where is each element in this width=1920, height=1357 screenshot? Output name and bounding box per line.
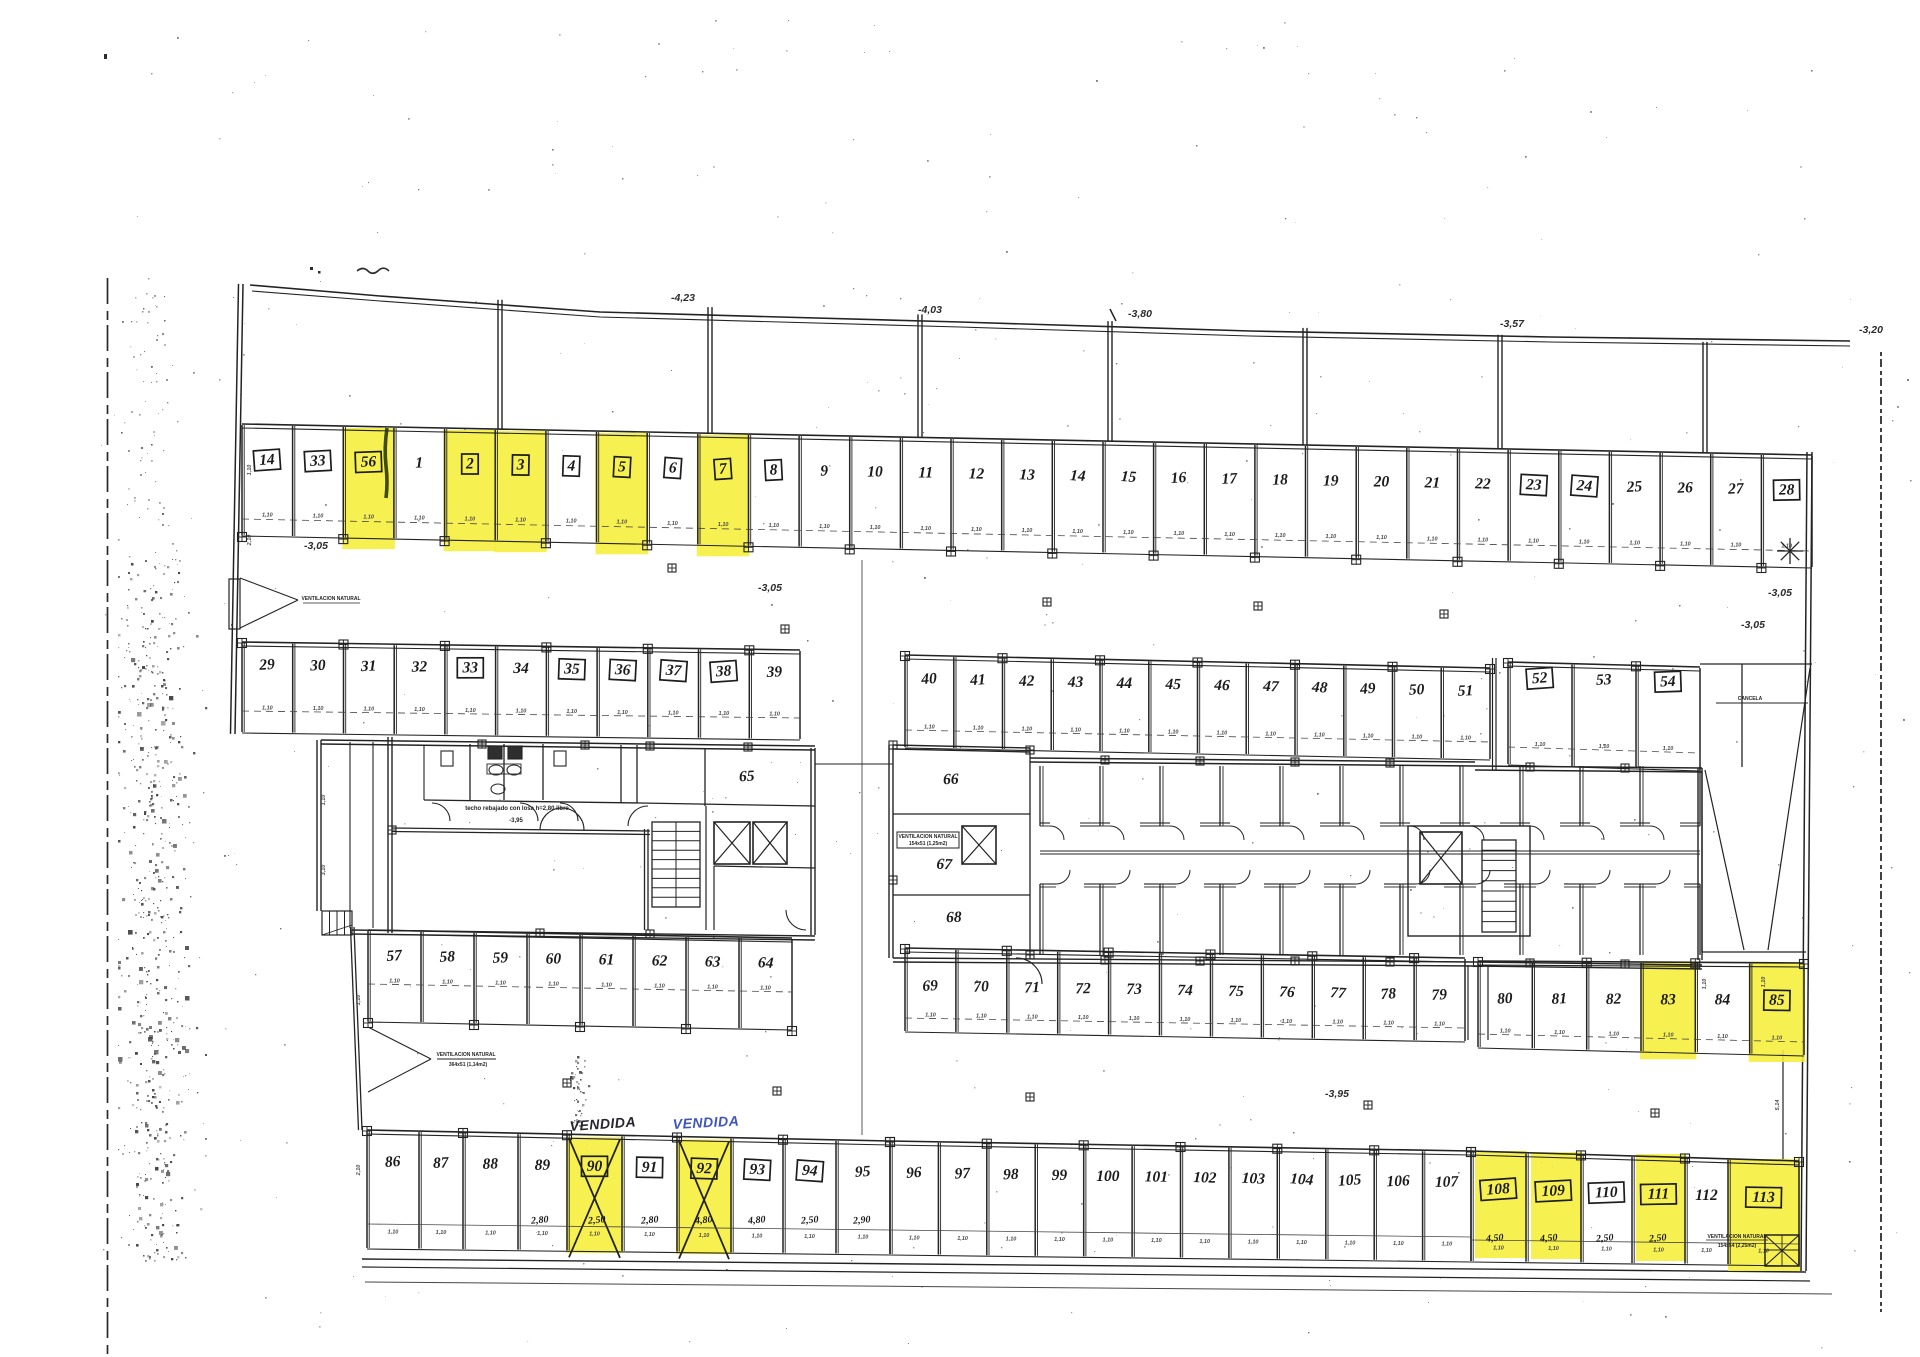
svg-text:31: 31	[360, 658, 377, 676]
svg-text:2,90: 2,90	[852, 1214, 871, 1227]
svg-text:1,10: 1,10	[1599, 744, 1610, 750]
svg-text:68: 68	[946, 909, 962, 927]
svg-text:1,10: 1,10	[1078, 1015, 1089, 1021]
svg-text:97: 97	[954, 1165, 972, 1183]
svg-text:1,10: 1,10	[1070, 728, 1081, 734]
svg-text:110: 110	[1595, 1184, 1618, 1202]
svg-text:34: 34	[512, 660, 529, 677]
svg-text:112: 112	[1695, 1187, 1718, 1204]
svg-text:1,10: 1,10	[465, 517, 476, 523]
svg-text:1,10: 1,10	[1493, 1245, 1504, 1251]
svg-text:41: 41	[969, 671, 986, 689]
svg-text:1,10: 1,10	[601, 983, 612, 989]
svg-text:1,10: 1,10	[363, 707, 374, 713]
svg-text:108: 108	[1486, 1180, 1511, 1199]
svg-text:36: 36	[614, 661, 632, 679]
svg-text:1,10: 1,10	[436, 1230, 447, 1236]
svg-text:1,10: 1,10	[1027, 1014, 1038, 1020]
svg-text:20: 20	[1373, 474, 1390, 491]
svg-text:9: 9	[820, 462, 829, 479]
svg-text:1,10: 1,10	[976, 1013, 987, 1019]
svg-text:1,10: 1,10	[819, 524, 830, 530]
svg-text:1,10: 1,10	[654, 984, 665, 990]
svg-text:1,10: 1,10	[668, 710, 679, 716]
svg-text:10: 10	[867, 463, 883, 480]
svg-text:14: 14	[1070, 467, 1087, 485]
svg-text:1,10: 1,10	[1345, 1241, 1356, 1247]
svg-text:1,10: 1,10	[1702, 979, 1708, 990]
svg-text:1,10: 1,10	[388, 1229, 399, 1235]
svg-text:1,10: 1,10	[262, 705, 273, 711]
svg-text:4,50: 4,50	[1539, 1232, 1558, 1245]
svg-text:11: 11	[918, 465, 933, 482]
svg-text:1,10: 1,10	[495, 981, 506, 987]
svg-text:1,10: 1,10	[1477, 537, 1488, 543]
svg-text:18: 18	[1272, 471, 1288, 489]
svg-text:1,10: 1,10	[707, 985, 718, 991]
svg-text:95: 95	[854, 1163, 871, 1181]
svg-text:2,10: 2,10	[247, 535, 253, 547]
svg-text:88: 88	[482, 1155, 498, 1173]
svg-text:74: 74	[1177, 982, 1193, 999]
svg-text:1,10: 1,10	[1680, 541, 1691, 547]
svg-text:62: 62	[652, 952, 668, 969]
svg-text:1,10: 1,10	[1281, 1019, 1292, 1025]
svg-text:1,10: 1,10	[616, 520, 627, 526]
svg-text:1,10: 1,10	[909, 1235, 920, 1241]
svg-text:1,10: 1,10	[414, 707, 425, 713]
svg-text:44: 44	[1116, 675, 1133, 692]
svg-text:1,10: 1,10	[858, 1235, 869, 1241]
svg-text:81: 81	[1551, 990, 1567, 1008]
svg-text:1,10: 1,10	[870, 525, 881, 531]
svg-text:86: 86	[384, 1153, 401, 1171]
svg-text:-3,20: -3,20	[1859, 324, 1883, 336]
svg-text:103: 103	[1241, 1170, 1265, 1188]
svg-text:1,10: 1,10	[667, 521, 678, 527]
svg-text:1,10: 1,10	[1006, 1237, 1017, 1243]
svg-text:12: 12	[969, 465, 985, 482]
svg-text:1,10: 1,10	[1731, 543, 1742, 549]
svg-text:1,10: 1,10	[1500, 1029, 1511, 1035]
svg-text:1,10: 1,10	[769, 712, 780, 718]
svg-text:63: 63	[705, 953, 721, 971]
svg-text:154x54 (2,25m2): 154x54 (2,25m2)	[1718, 1243, 1757, 1249]
svg-text:52: 52	[1531, 669, 1548, 687]
svg-text:1,10: 1,10	[1123, 530, 1134, 536]
svg-text:21: 21	[1423, 474, 1440, 491]
svg-text:96: 96	[906, 1164, 923, 1182]
svg-text:69: 69	[922, 977, 939, 995]
svg-text:4: 4	[566, 457, 576, 474]
svg-text:1,10: 1,10	[1412, 735, 1423, 741]
svg-text:1,10: 1,10	[1653, 1247, 1664, 1253]
svg-text:1,10: 1,10	[1168, 730, 1179, 736]
svg-text:1,10: 1,10	[1022, 528, 1033, 534]
svg-text:45: 45	[1164, 676, 1181, 693]
svg-text:1,10: 1,10	[1217, 731, 1228, 737]
svg-text:42: 42	[1018, 672, 1035, 690]
svg-text:1,10: 1,10	[1701, 1248, 1712, 1254]
svg-text:1,10: 1,10	[957, 1236, 968, 1242]
svg-text:1,10: 1,10	[1460, 736, 1471, 742]
svg-text:40: 40	[920, 670, 938, 688]
svg-text:2,50: 2,50	[587, 1214, 606, 1227]
svg-text:1,10: 1,10	[804, 1234, 815, 1240]
svg-text:3,10: 3,10	[321, 865, 327, 876]
svg-text:106: 106	[1386, 1172, 1410, 1190]
svg-text:29: 29	[258, 656, 276, 674]
svg-text:46: 46	[1213, 677, 1230, 695]
svg-text:38: 38	[714, 662, 732, 680]
svg-text:72: 72	[1075, 980, 1091, 997]
svg-text:4,80: 4,80	[694, 1214, 713, 1227]
svg-text:70: 70	[973, 978, 990, 996]
svg-text:1,10: 1,10	[1151, 1238, 1162, 1244]
svg-text:1,10: 1,10	[1663, 746, 1674, 752]
svg-text:32: 32	[411, 658, 428, 675]
svg-text:87: 87	[433, 1154, 451, 1172]
svg-text:1: 1	[415, 454, 423, 471]
svg-text:1,10: 1,10	[1119, 729, 1130, 735]
svg-text:-4,03: -4,03	[918, 304, 942, 316]
svg-text:99: 99	[1052, 1167, 1068, 1184]
svg-text:2,50: 2,50	[800, 1214, 819, 1227]
svg-text:100: 100	[1096, 1168, 1120, 1185]
svg-text:1,10: 1,10	[1231, 1018, 1242, 1024]
svg-text:1,10: 1,10	[719, 711, 730, 717]
svg-text:1,10: 1,10	[1663, 1033, 1674, 1039]
svg-text:VENTILACION NATURAL: VENTILACION NATURAL	[436, 1052, 495, 1058]
svg-text:1,10: 1,10	[566, 519, 577, 525]
svg-text:1,10: 1,10	[589, 1232, 600, 1238]
svg-text:1,10: 1,10	[313, 514, 324, 520]
svg-text:82: 82	[1606, 991, 1622, 1009]
svg-text:1,10: 1,10	[1393, 1241, 1404, 1247]
svg-text:1,10: 1,10	[548, 982, 559, 988]
svg-text:107: 107	[1435, 1173, 1460, 1191]
svg-text:1,10: 1,10	[537, 1231, 548, 1237]
svg-text:80: 80	[1497, 990, 1514, 1008]
svg-text:101: 101	[1145, 1168, 1169, 1185]
svg-text:25: 25	[1625, 478, 1643, 496]
svg-text:1,10: 1,10	[1275, 533, 1286, 539]
svg-text:93: 93	[749, 1161, 766, 1179]
svg-text:1,10: 1,10	[760, 986, 771, 992]
svg-text:1,10: 1,10	[699, 1233, 710, 1239]
svg-text:1,10: 1,10	[971, 527, 982, 533]
svg-text:60: 60	[546, 950, 562, 967]
svg-text:1,10: 1,10	[389, 979, 400, 985]
svg-text:1,10: 1,10	[1072, 529, 1083, 535]
svg-text:1,10: 1,10	[617, 710, 628, 716]
svg-text:1,10: 1,10	[515, 518, 526, 524]
svg-text:90: 90	[587, 1158, 603, 1175]
svg-text:75: 75	[1228, 983, 1244, 1001]
svg-text:16: 16	[1170, 469, 1187, 487]
svg-text:51: 51	[1457, 682, 1473, 700]
svg-text:1,10: 1,10	[1758, 1249, 1769, 1255]
svg-text:28: 28	[1778, 481, 1795, 498]
svg-text:-3,80: -3,80	[1128, 308, 1152, 320]
svg-text:1,10: 1,10	[920, 526, 931, 532]
svg-text:1,10: 1,10	[485, 1230, 496, 1236]
svg-text:-3,95: -3,95	[1325, 1088, 1349, 1100]
svg-text:91: 91	[642, 1159, 658, 1176]
svg-text:4,80: 4,80	[747, 1214, 766, 1227]
svg-text:1,10: 1,10	[1022, 727, 1033, 733]
svg-text:1,10: 1,10	[1528, 538, 1539, 544]
svg-text:23: 23	[1525, 476, 1543, 494]
svg-text:1,10: 1,10	[1129, 1016, 1140, 1022]
svg-text:1,10: 1,10	[321, 795, 327, 806]
svg-text:47: 47	[1262, 678, 1281, 696]
svg-text:49: 49	[1358, 680, 1376, 698]
svg-text:59: 59	[492, 949, 508, 967]
svg-text:84: 84	[1715, 992, 1731, 1009]
svg-text:1,10: 1,10	[1296, 1240, 1307, 1246]
svg-text:1,10: 1,10	[1579, 539, 1590, 545]
svg-text:1,10: 1,10	[1265, 732, 1276, 738]
svg-text:14: 14	[259, 451, 276, 469]
svg-text:1,10: 1,10	[1771, 1035, 1782, 1041]
svg-text:1,10: 1,10	[1199, 1239, 1210, 1245]
svg-text:1,10: 1,10	[1054, 1237, 1065, 1243]
svg-text:105: 105	[1337, 1171, 1362, 1190]
svg-text:1,10: 1,10	[1427, 536, 1438, 542]
svg-text:154x51 (1,25m2): 154x51 (1,25m2)	[909, 841, 948, 847]
svg-text:1,10: 1,10	[1608, 1031, 1619, 1037]
svg-text:1,10: 1,10	[1326, 534, 1337, 540]
svg-text:8: 8	[769, 461, 778, 478]
svg-text:1,10: 1,10	[1535, 742, 1546, 748]
svg-text:1,10: 1,10	[363, 515, 374, 521]
svg-text:1,10: 1,10	[718, 522, 729, 528]
svg-text:1,10: 1,10	[516, 709, 527, 715]
svg-text:15: 15	[1120, 468, 1137, 486]
svg-text:-3,57: -3,57	[1500, 318, 1525, 330]
svg-text:1,10: 1,10	[1224, 532, 1235, 538]
svg-text:37: 37	[664, 662, 683, 680]
svg-text:30: 30	[309, 657, 327, 675]
svg-text:5,14: 5,14	[1775, 1100, 1781, 1111]
svg-text:85: 85	[1769, 992, 1785, 1009]
svg-text:1,10: 1,10	[644, 1232, 655, 1238]
svg-text:1,10: 1,10	[1363, 734, 1374, 740]
svg-text:94: 94	[801, 1162, 818, 1180]
svg-text:22: 22	[1474, 475, 1491, 493]
svg-text:1,10: 1,10	[1376, 535, 1387, 541]
svg-text:26: 26	[1676, 479, 1694, 497]
svg-text:2,80: 2,80	[530, 1214, 549, 1227]
svg-text:1,10: 1,10	[1629, 540, 1640, 546]
svg-text:-3,05: -3,05	[1768, 587, 1792, 599]
svg-text:48: 48	[1310, 679, 1328, 697]
svg-text:1,10: 1,10	[414, 516, 425, 522]
svg-text:1,10: 1,10	[1761, 977, 1767, 988]
svg-text:65: 65	[739, 768, 756, 786]
svg-text:4,50: 4,50	[1485, 1232, 1504, 1245]
svg-text:-3,95: -3,95	[509, 818, 523, 824]
svg-text:19: 19	[1323, 472, 1339, 489]
svg-text:VENTILACION NATURAL: VENTILACION NATURAL	[1707, 1234, 1766, 1240]
svg-text:1,10: 1,10	[1434, 1022, 1445, 1028]
svg-text:3: 3	[516, 456, 525, 473]
svg-text:58: 58	[439, 948, 456, 966]
svg-text:1,10: 1,10	[247, 465, 253, 476]
svg-text:-3,05: -3,05	[304, 540, 328, 552]
svg-text:2,10: 2,10	[356, 1165, 362, 1177]
svg-text:1,10: 1,10	[356, 995, 362, 1006]
svg-text:1,10: 1,10	[1601, 1247, 1612, 1253]
svg-text:2,50: 2,50	[1595, 1232, 1614, 1245]
svg-text:61: 61	[599, 952, 615, 969]
svg-text:33: 33	[462, 659, 479, 676]
svg-text:102: 102	[1193, 1169, 1217, 1187]
svg-text:73: 73	[1126, 981, 1142, 998]
svg-text:83: 83	[1660, 991, 1676, 1008]
svg-text:1,10: 1,10	[262, 513, 273, 519]
svg-text:1,10: 1,10	[1717, 1034, 1728, 1040]
svg-text:1,10: 1,10	[442, 980, 453, 986]
svg-text:CANCELA: CANCELA	[1738, 696, 1763, 702]
svg-text:-3,05: -3,05	[1741, 619, 1765, 631]
svg-text:43: 43	[1067, 674, 1084, 691]
svg-text:VENTILACION NATURAL: VENTILACION NATURAL	[301, 596, 360, 602]
svg-text:89: 89	[535, 1157, 551, 1174]
svg-text:1,10: 1,10	[1314, 733, 1325, 739]
svg-text:1,10: 1,10	[752, 1234, 763, 1240]
svg-text:1,10: 1,10	[924, 725, 935, 731]
svg-text:1,10: 1,10	[1248, 1239, 1259, 1245]
svg-text:33: 33	[309, 452, 327, 470]
svg-text:1,10: 1,10	[1554, 1030, 1565, 1036]
svg-text:98: 98	[1003, 1166, 1019, 1184]
svg-text:111: 111	[1648, 1186, 1670, 1203]
svg-text:24: 24	[1575, 477, 1593, 495]
svg-text:92: 92	[696, 1160, 712, 1178]
svg-text:5: 5	[618, 458, 627, 475]
svg-text:50: 50	[1408, 681, 1425, 699]
svg-text:64: 64	[758, 954, 775, 972]
svg-text:109: 109	[1541, 1182, 1565, 1200]
svg-text:17: 17	[1221, 470, 1239, 488]
svg-text:1,10: 1,10	[1383, 1021, 1394, 1027]
svg-text:1,10: 1,10	[768, 523, 779, 529]
svg-text:VENTILACION NATURAL: VENTILACION NATURAL	[898, 834, 957, 840]
svg-text:1,10: 1,10	[925, 1013, 936, 1019]
svg-text:1,10: 1,10	[1441, 1242, 1452, 1248]
svg-text:104: 104	[1290, 1170, 1315, 1189]
svg-text:2: 2	[465, 456, 474, 473]
svg-text:57: 57	[386, 947, 404, 965]
svg-text:2,50: 2,50	[1648, 1232, 1667, 1245]
svg-text:364x51 (1,14m2): 364x51 (1,14m2)	[449, 1062, 488, 1068]
svg-text:66: 66	[943, 771, 959, 789]
svg-text:1,10: 1,10	[1548, 1246, 1559, 1252]
svg-text:1,10: 1,10	[465, 708, 476, 714]
svg-text:71: 71	[1024, 979, 1040, 997]
svg-text:79: 79	[1431, 986, 1448, 1004]
svg-text:1,10: 1,10	[973, 726, 984, 732]
svg-text:1,10: 1,10	[1332, 1020, 1343, 1026]
svg-text:67: 67	[936, 856, 954, 874]
svg-text:1,10: 1,10	[1174, 531, 1185, 537]
svg-text:1,10: 1,10	[1103, 1238, 1114, 1244]
svg-text:13: 13	[1019, 466, 1035, 484]
svg-text:2,80: 2,80	[640, 1214, 659, 1227]
svg-text:39: 39	[765, 663, 783, 681]
svg-text:1,10: 1,10	[566, 709, 577, 715]
svg-text:1,10: 1,10	[313, 706, 324, 712]
svg-text:27: 27	[1727, 480, 1745, 498]
svg-text:1,10: 1,10	[1180, 1017, 1191, 1023]
svg-text:113: 113	[1752, 1189, 1775, 1206]
svg-text:78: 78	[1380, 985, 1397, 1003]
svg-text:56: 56	[360, 453, 376, 471]
svg-text:-3,05: -3,05	[758, 582, 782, 594]
svg-text:35: 35	[563, 660, 580, 678]
svg-text:54: 54	[1660, 673, 1676, 691]
svg-text:77: 77	[1330, 984, 1348, 1002]
svg-text:-4,23: -4,23	[671, 292, 695, 304]
svg-text:6: 6	[668, 459, 677, 477]
svg-text:76: 76	[1279, 983, 1296, 1001]
svg-text:53: 53	[1596, 671, 1613, 689]
